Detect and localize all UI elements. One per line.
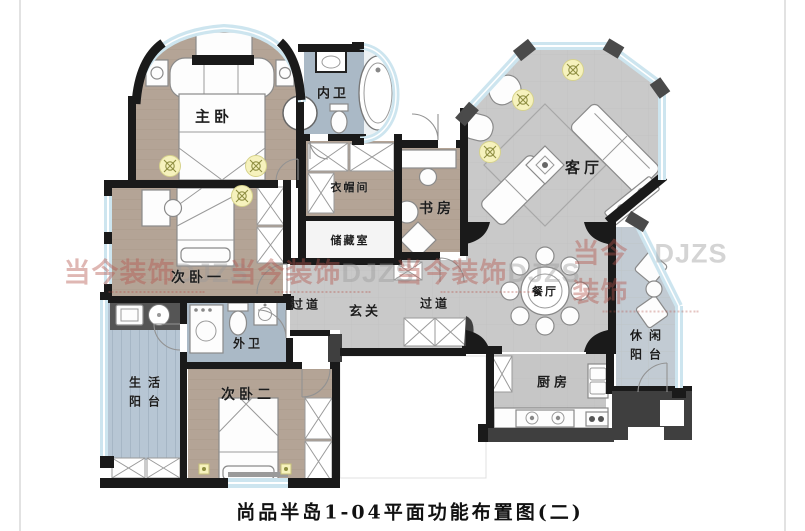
plan-caption: 尚品半岛1-04平面功能布置图(二): [236, 498, 584, 525]
floor-plan-drawing: [0, 0, 805, 531]
label-second-bedroom-2: 次卧二: [221, 384, 275, 404]
label-storage-room: 储藏室: [331, 232, 370, 248]
label-inner-bathroom: 内卫: [317, 83, 349, 102]
foyer-shoe-cabinet-hatch: [404, 316, 474, 347]
label-outer-bathroom: 外卫: [233, 335, 263, 352]
label-second-bedroom-1: 次卧一: [171, 267, 225, 287]
label-walk-in-closet: 衣帽间: [331, 179, 370, 195]
balcony-cabinet-hatch: [112, 458, 180, 478]
label-utility-balcony: 生活阳台: [125, 373, 171, 410]
label-corridor-right: 过道: [420, 295, 450, 312]
label-dining-room: 餐厅: [532, 283, 558, 299]
label-living-room: 客厅: [565, 157, 603, 178]
laundry-counter: [110, 300, 180, 330]
label-leisure-balcony: 休闲阳台: [626, 326, 672, 363]
floor-plan-canvas: 当今装饰DJZS 当今装饰DJZS 当今装饰DJZS 当今装饰DJZS 主卧 内…: [0, 0, 805, 531]
kitchen-fridge-hatch: [492, 356, 512, 392]
void-area: [340, 356, 486, 478]
label-foyer: 玄关: [349, 301, 381, 320]
label-corridor-left: 过道: [291, 296, 321, 313]
label-study: 书房: [419, 198, 455, 218]
bedroom1-wardrobe-hatch: [257, 187, 284, 263]
label-kitchen: 厨房: [537, 372, 571, 391]
bedroom2-bed: [219, 398, 278, 484]
label-master-bedroom: 主卧: [195, 106, 233, 127]
